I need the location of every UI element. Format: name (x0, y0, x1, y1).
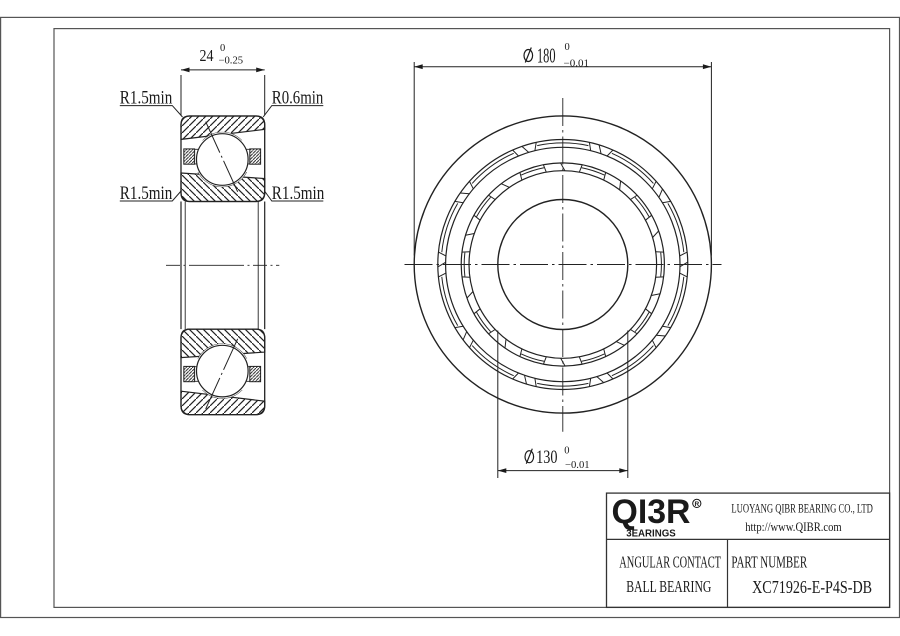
svg-text:LUOYANG QIBR BEARING CO., LTD: LUOYANG QIBR BEARING CO., LTD (731, 502, 873, 516)
svg-text:0: 0 (564, 445, 569, 456)
svg-text:PART NUMBER: PART NUMBER (731, 553, 807, 572)
svg-text:ANGULAR CONTACT: ANGULAR CONTACT (619, 553, 721, 572)
svg-text:24: 24 (200, 46, 214, 65)
svg-text:XC71926-E-P4S-DB: XC71926-E-P4S-DB (752, 577, 872, 597)
svg-text:QI3R: QI3R (612, 493, 691, 531)
svg-text:−0.01: −0.01 (565, 460, 590, 471)
svg-text:180: 180 (537, 44, 556, 68)
svg-text:130: 130 (536, 448, 557, 468)
svg-text:3EARINGS: 3EARINGS (626, 529, 676, 540)
svg-text:R: R (695, 501, 700, 508)
svg-text:0: 0 (565, 42, 570, 53)
svg-text:0: 0 (220, 43, 225, 54)
svg-text:BALL BEARING: BALL BEARING (626, 577, 711, 596)
svg-text:−0.01: −0.01 (564, 59, 590, 70)
svg-text:−0.25: −0.25 (219, 55, 244, 66)
svg-text:http://www.QIBR.com: http://www.QIBR.com (745, 520, 842, 534)
